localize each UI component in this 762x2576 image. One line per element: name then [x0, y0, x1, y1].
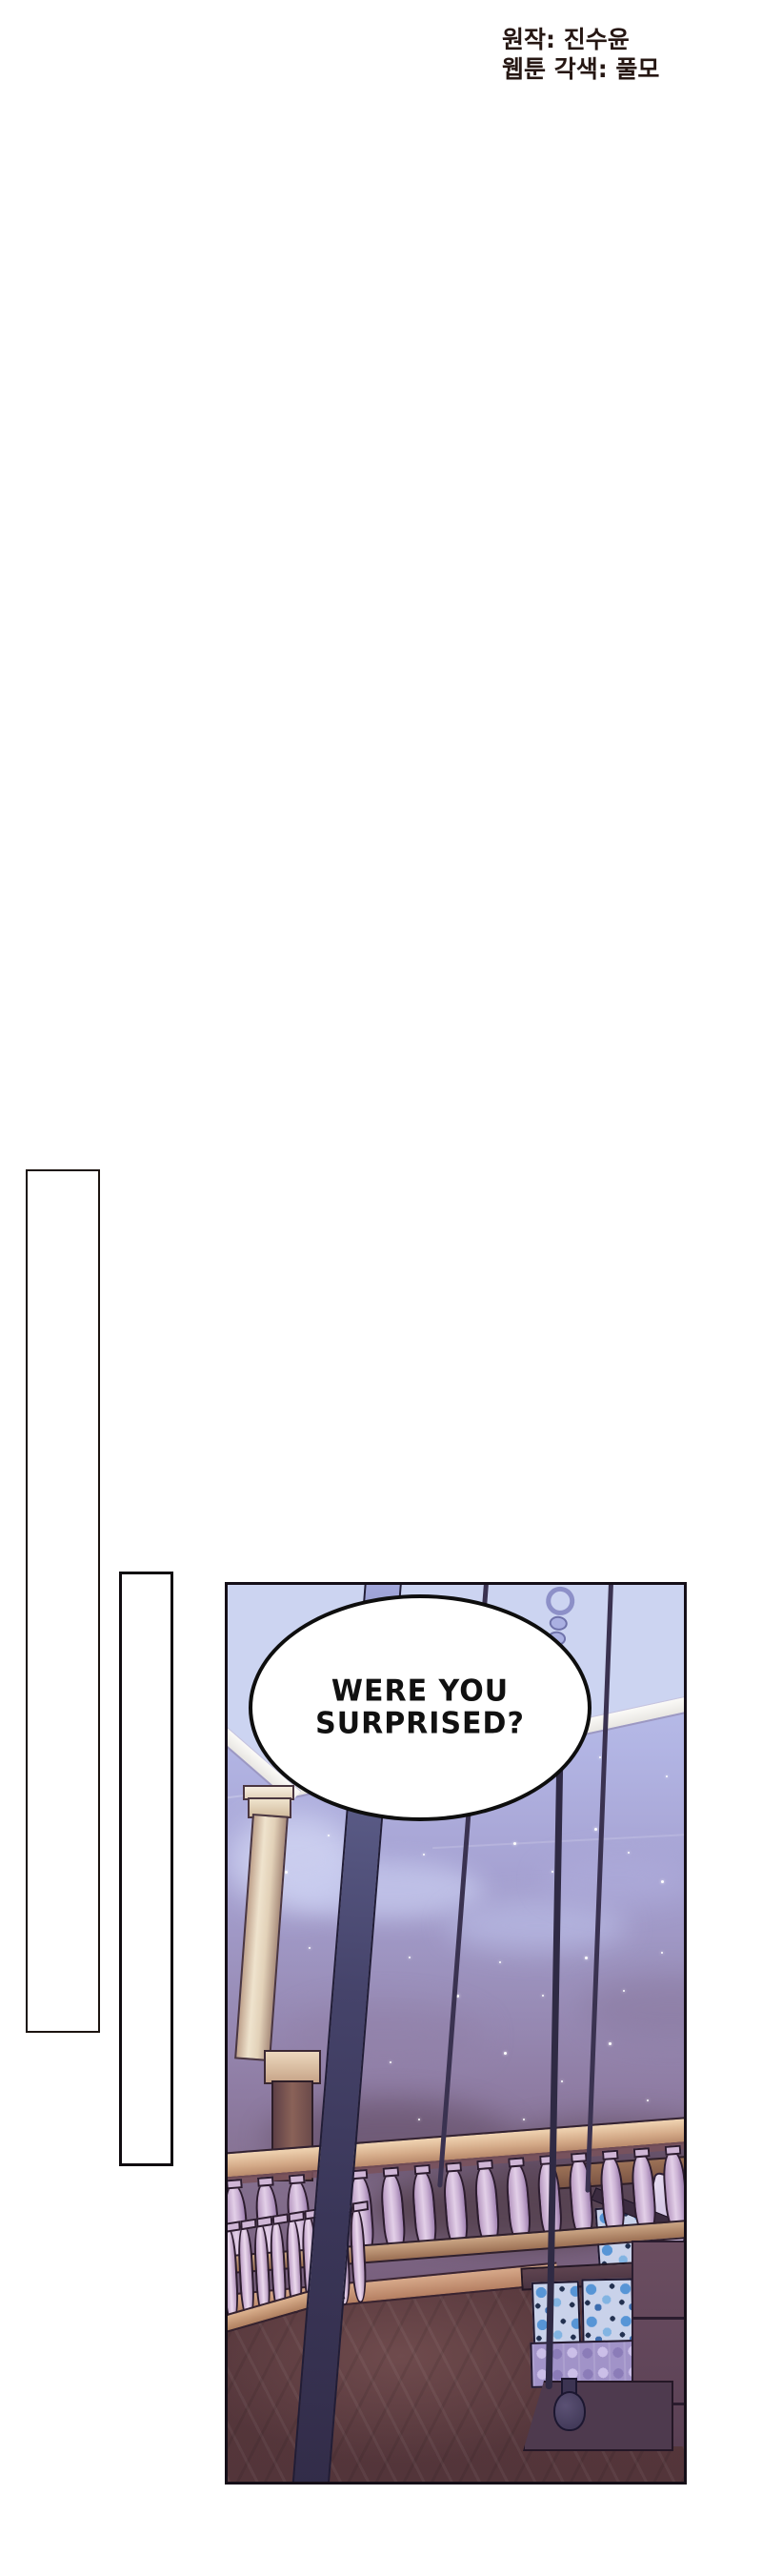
star [418, 2119, 420, 2120]
star [609, 2042, 612, 2045]
chain-ring [545, 1585, 576, 1616]
star [623, 1990, 625, 1992]
credit-original-author: 원작: 진수윤 [502, 25, 659, 54]
column-pedestal [264, 2050, 321, 2084]
star [628, 1852, 630, 1854]
star [551, 1871, 553, 1873]
star [513, 1842, 516, 1845]
star [594, 1828, 597, 1831]
star [661, 1880, 664, 1883]
floral-cushion-right [581, 2279, 633, 2344]
scene-panel: WERE YOU SURPRISED? [225, 1582, 687, 2485]
credit-webtoon-adaptation: 웹툰 각색: 풀모 [502, 54, 659, 84]
star [561, 2080, 563, 2082]
star [285, 1871, 288, 1874]
credits-block: 원작: 진수윤 웹툰 각색: 풀모 [502, 25, 659, 84]
rope-handle-knob [553, 2391, 586, 2431]
speech-bubble: WERE YOU SURPRISED? [249, 1594, 592, 1821]
star [661, 1952, 663, 1954]
star [523, 2119, 525, 2120]
webtoon-page: 원작: 진수윤 웹툰 각색: 풀모 [0, 0, 762, 2576]
star [585, 1957, 588, 1959]
empty-panel-tall [26, 1169, 100, 2033]
star [423, 1854, 425, 1856]
star [666, 1775, 668, 1777]
star [504, 2052, 507, 2055]
star [647, 2099, 649, 2101]
star [328, 1835, 330, 1836]
star [599, 1756, 601, 1758]
floral-cushion-left [531, 2281, 581, 2347]
cloud [285, 1861, 485, 1918]
star [499, 1961, 501, 1963]
empty-panel-short [119, 1572, 173, 2166]
speech-line-2: SURPRISED? [315, 1707, 525, 1741]
star [542, 1995, 544, 1997]
cloud [542, 1856, 687, 1904]
star [309, 1947, 311, 1949]
star [390, 2061, 391, 2063]
star [409, 1957, 411, 1958]
speech-line-1: WERE YOU [331, 1674, 509, 1709]
swing-bench-base [523, 2381, 673, 2451]
